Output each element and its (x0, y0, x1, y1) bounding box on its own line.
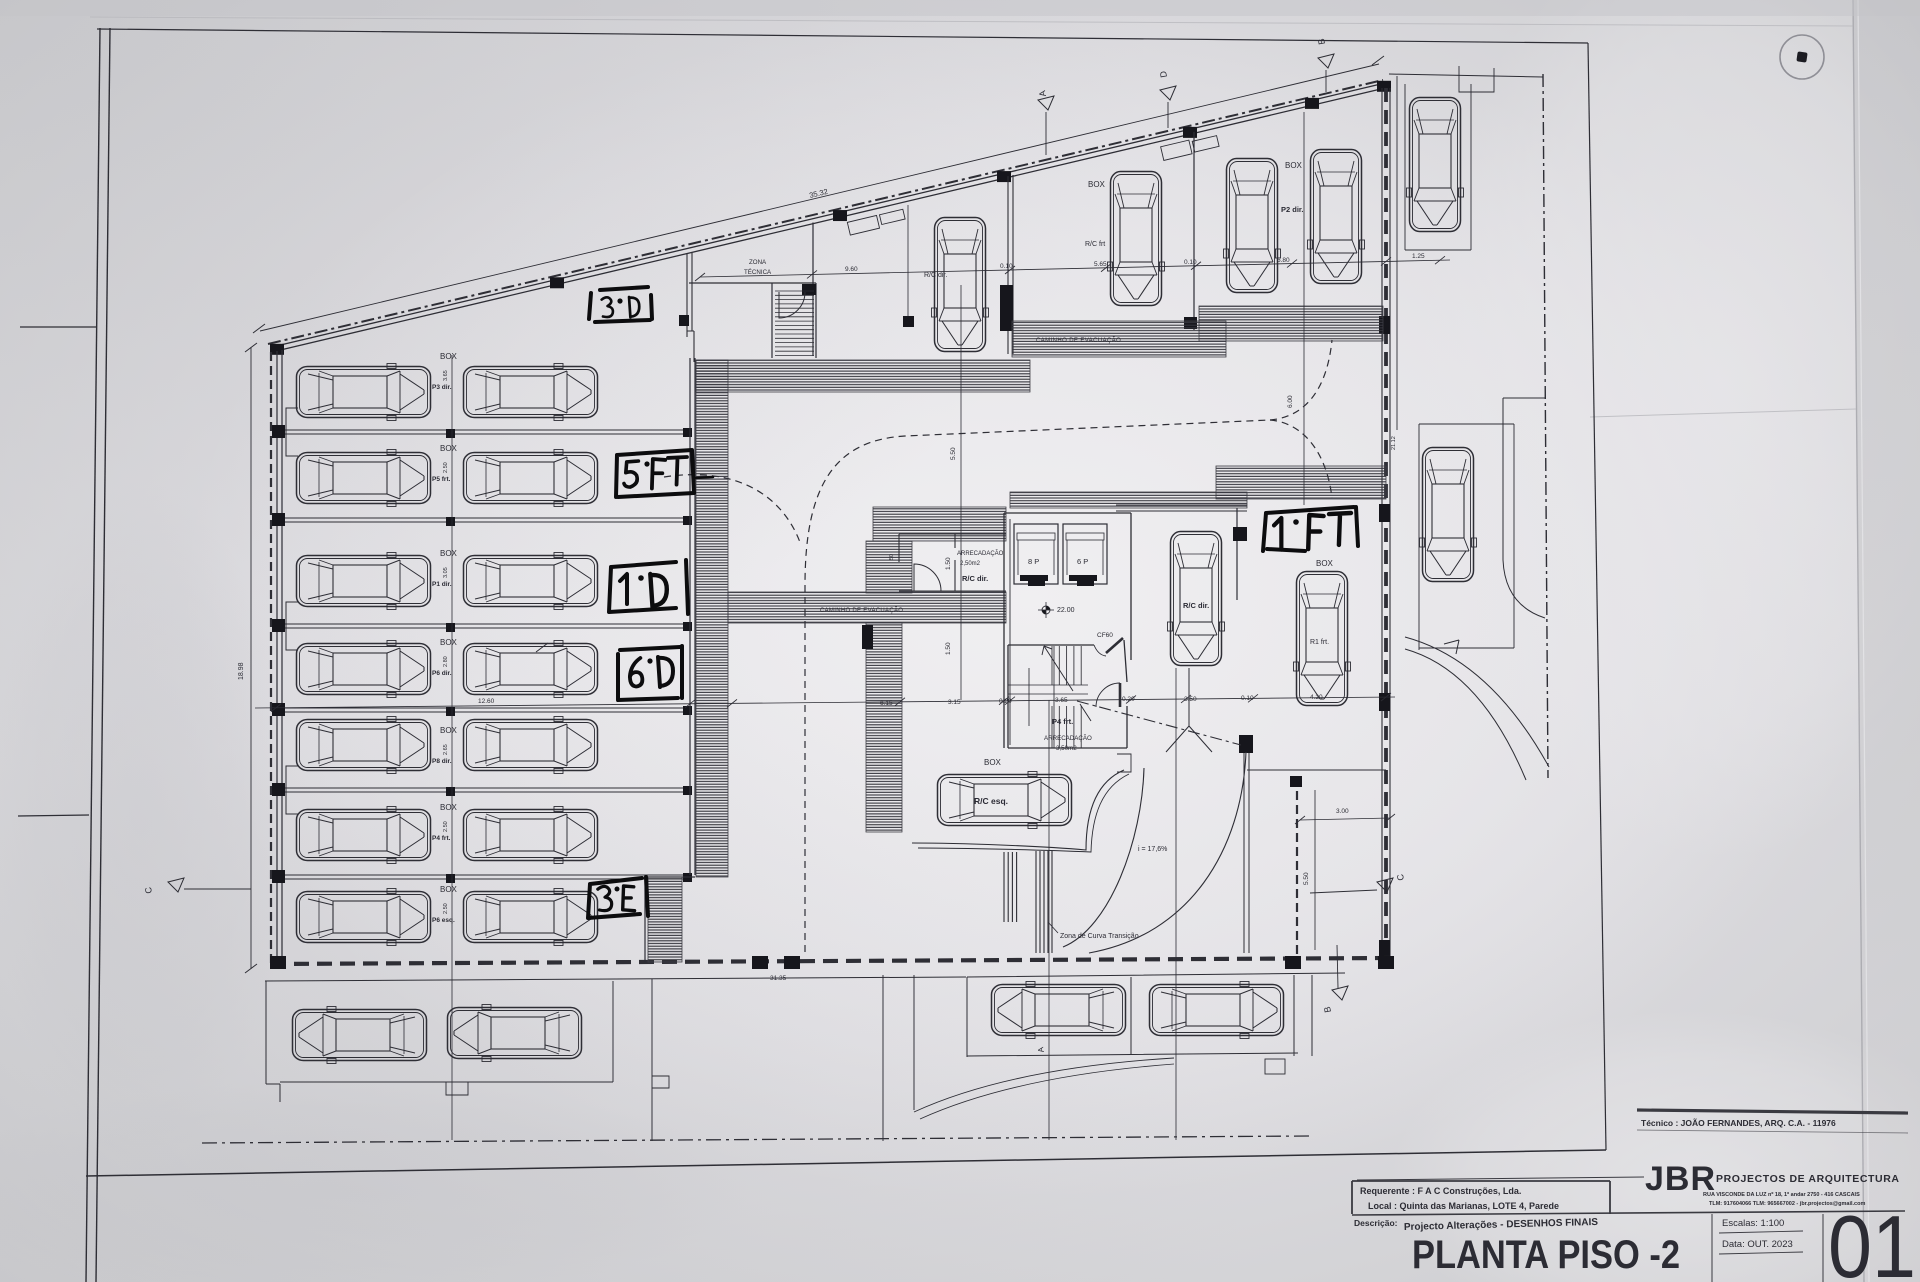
svg-text:9.60: 9.60 (845, 266, 858, 273)
svg-text:CAMINHO DE EVACUAÇÃO: CAMINHO DE EVACUAÇÃO (1036, 337, 1121, 344)
svg-text:ZONA: ZONA (749, 259, 767, 266)
svg-text:3.50: 3.50 (1184, 696, 1197, 703)
svg-text:8 P: 8 P (1028, 557, 1039, 566)
svg-text:2.50: 2.50 (443, 821, 449, 832)
svg-text:3.00: 3.00 (1336, 808, 1349, 815)
svg-text:5.50: 5.50 (1303, 872, 1310, 885)
svg-text:BOX: BOX (1285, 161, 1303, 170)
svg-text:R/C frt: R/C frt (1085, 241, 1105, 248)
svg-text:2,50m2: 2,50m2 (960, 561, 981, 567)
svg-text:BOX: BOX (440, 885, 458, 894)
svg-text:P5 frt.: P5 frt. (432, 476, 451, 483)
svg-text:Local : Quinta das Marianas, L: Local : Quinta das Marianas, LOTE 4, Par… (1368, 1201, 1559, 1211)
svg-text:0.10: 0.10 (1000, 263, 1013, 270)
svg-text:BOX: BOX (984, 758, 1002, 767)
svg-text:P3 dir.: P3 dir. (432, 384, 452, 391)
svg-text:P6 esq.: P6 esq. (432, 917, 455, 924)
svg-text:22.00: 22.00 (1057, 607, 1075, 614)
svg-text:31.35: 31.35 (770, 975, 787, 982)
svg-text:Técnico : JOÃO FERNANDES, ARQ.: Técnico : JOÃO FERNANDES, ARQ. C.A. - 11… (1641, 1118, 1836, 1128)
svg-text:1.25: 1.25 (1412, 253, 1425, 260)
svg-text:i = 17,6%: i = 17,6% (1138, 846, 1167, 853)
svg-text:18.98: 18.98 (238, 662, 245, 680)
svg-text:P2 dir.: P2 dir. (1281, 205, 1304, 214)
svg-text:0.20: 0.20 (1122, 696, 1135, 703)
svg-text:2.65: 2.65 (443, 744, 449, 755)
svg-text:6.00: 6.00 (1287, 395, 1294, 408)
svg-text:3,50m2: 3,50m2 (1056, 745, 1077, 752)
svg-text:BOX: BOX (1316, 559, 1334, 568)
svg-text:BOX: BOX (1088, 180, 1106, 189)
svg-text:4.20: 4.20 (1310, 694, 1323, 701)
svg-text:5.80: 5.80 (1277, 257, 1290, 264)
svg-text:BOX: BOX (440, 638, 458, 647)
svg-text:3.15: 3.15 (948, 699, 961, 706)
svg-text:21.12: 21.12 (1391, 436, 1397, 450)
svg-text:5.65: 5.65 (1094, 261, 1107, 268)
svg-text:Escalas: 1:100: Escalas: 1:100 (1722, 1218, 1784, 1229)
svg-text:BOX: BOX (440, 549, 458, 558)
svg-text:Data: OUT. 2023: Data: OUT. 2023 (1722, 1239, 1793, 1250)
svg-text:BOX: BOX (440, 444, 458, 453)
svg-text:P4 frt.: P4 frt. (1052, 717, 1073, 726)
svg-text:R1 frt.: R1 frt. (1310, 639, 1329, 646)
svg-text:BOX: BOX (440, 803, 458, 812)
svg-text:2.50: 2.50 (443, 462, 449, 473)
svg-text:1.50: 1.50 (945, 642, 952, 655)
svg-text:12.60: 12.60 (478, 698, 495, 705)
svg-text:R/C dir.: R/C dir. (1183, 601, 1209, 610)
svg-text:Zona de Curva Transição: Zona de Curva Transição (1060, 933, 1139, 940)
svg-text:PROJECTOS DE ARQUITECTURA: PROJECTOS DE ARQUITECTURA (1716, 1173, 1900, 1185)
svg-text:01: 01 (1828, 1197, 1916, 1282)
svg-text:PLANTA PISO -2: PLANTA PISO -2 (1412, 1233, 1680, 1277)
svg-text:P6 dir.: P6 dir. (432, 670, 452, 677)
svg-text:6 P: 6 P (1077, 557, 1088, 566)
svg-text:6.15: 6.15 (880, 700, 893, 707)
svg-text:TÉCNICA: TÉCNICA (744, 269, 772, 276)
svg-text:R/C dir.: R/C dir. (924, 272, 947, 279)
svg-text:BOX: BOX (440, 726, 458, 735)
svg-text:R/C esq.: R/C esq. (974, 796, 1008, 806)
svg-text:P8 dir.: P8 dir. (432, 758, 452, 765)
svg-text:3.65: 3.65 (443, 370, 449, 381)
svg-text:2.50: 2.50 (443, 903, 449, 914)
svg-text:50: 50 (889, 554, 895, 560)
svg-text:CF60: CF60 (1097, 632, 1113, 639)
svg-text:0.20: 0.20 (999, 698, 1012, 705)
svg-text:BOX: BOX (440, 352, 458, 361)
svg-text:ARRECADAÇÃO: ARRECADAÇÃO (1044, 735, 1092, 742)
svg-text:3.05: 3.05 (443, 567, 449, 578)
svg-text:3.65: 3.65 (1055, 697, 1068, 704)
svg-text:Descrição:: Descrição: (1354, 1218, 1398, 1228)
svg-text:R/C dir.: R/C dir. (962, 574, 988, 583)
svg-text:P1 dir.: P1 dir. (432, 581, 452, 588)
svg-text:ARRECADAÇÃO: ARRECADAÇÃO (957, 550, 1004, 557)
svg-text:Requerente : F A C Construçõe: Requerente : F A C Construções, Lda. (1360, 1186, 1521, 1196)
svg-text:0.10: 0.10 (1184, 259, 1197, 266)
svg-text:0.10: 0.10 (1241, 695, 1254, 702)
svg-text:5.50: 5.50 (950, 447, 957, 460)
svg-text:CAMINHO DE EVACUAÇÃO: CAMINHO DE EVACUAÇÃO (820, 607, 903, 614)
svg-text:1.50: 1.50 (945, 557, 952, 570)
svg-text:2.80: 2.80 (443, 656, 449, 667)
svg-text:P4 frt.: P4 frt. (432, 835, 451, 842)
